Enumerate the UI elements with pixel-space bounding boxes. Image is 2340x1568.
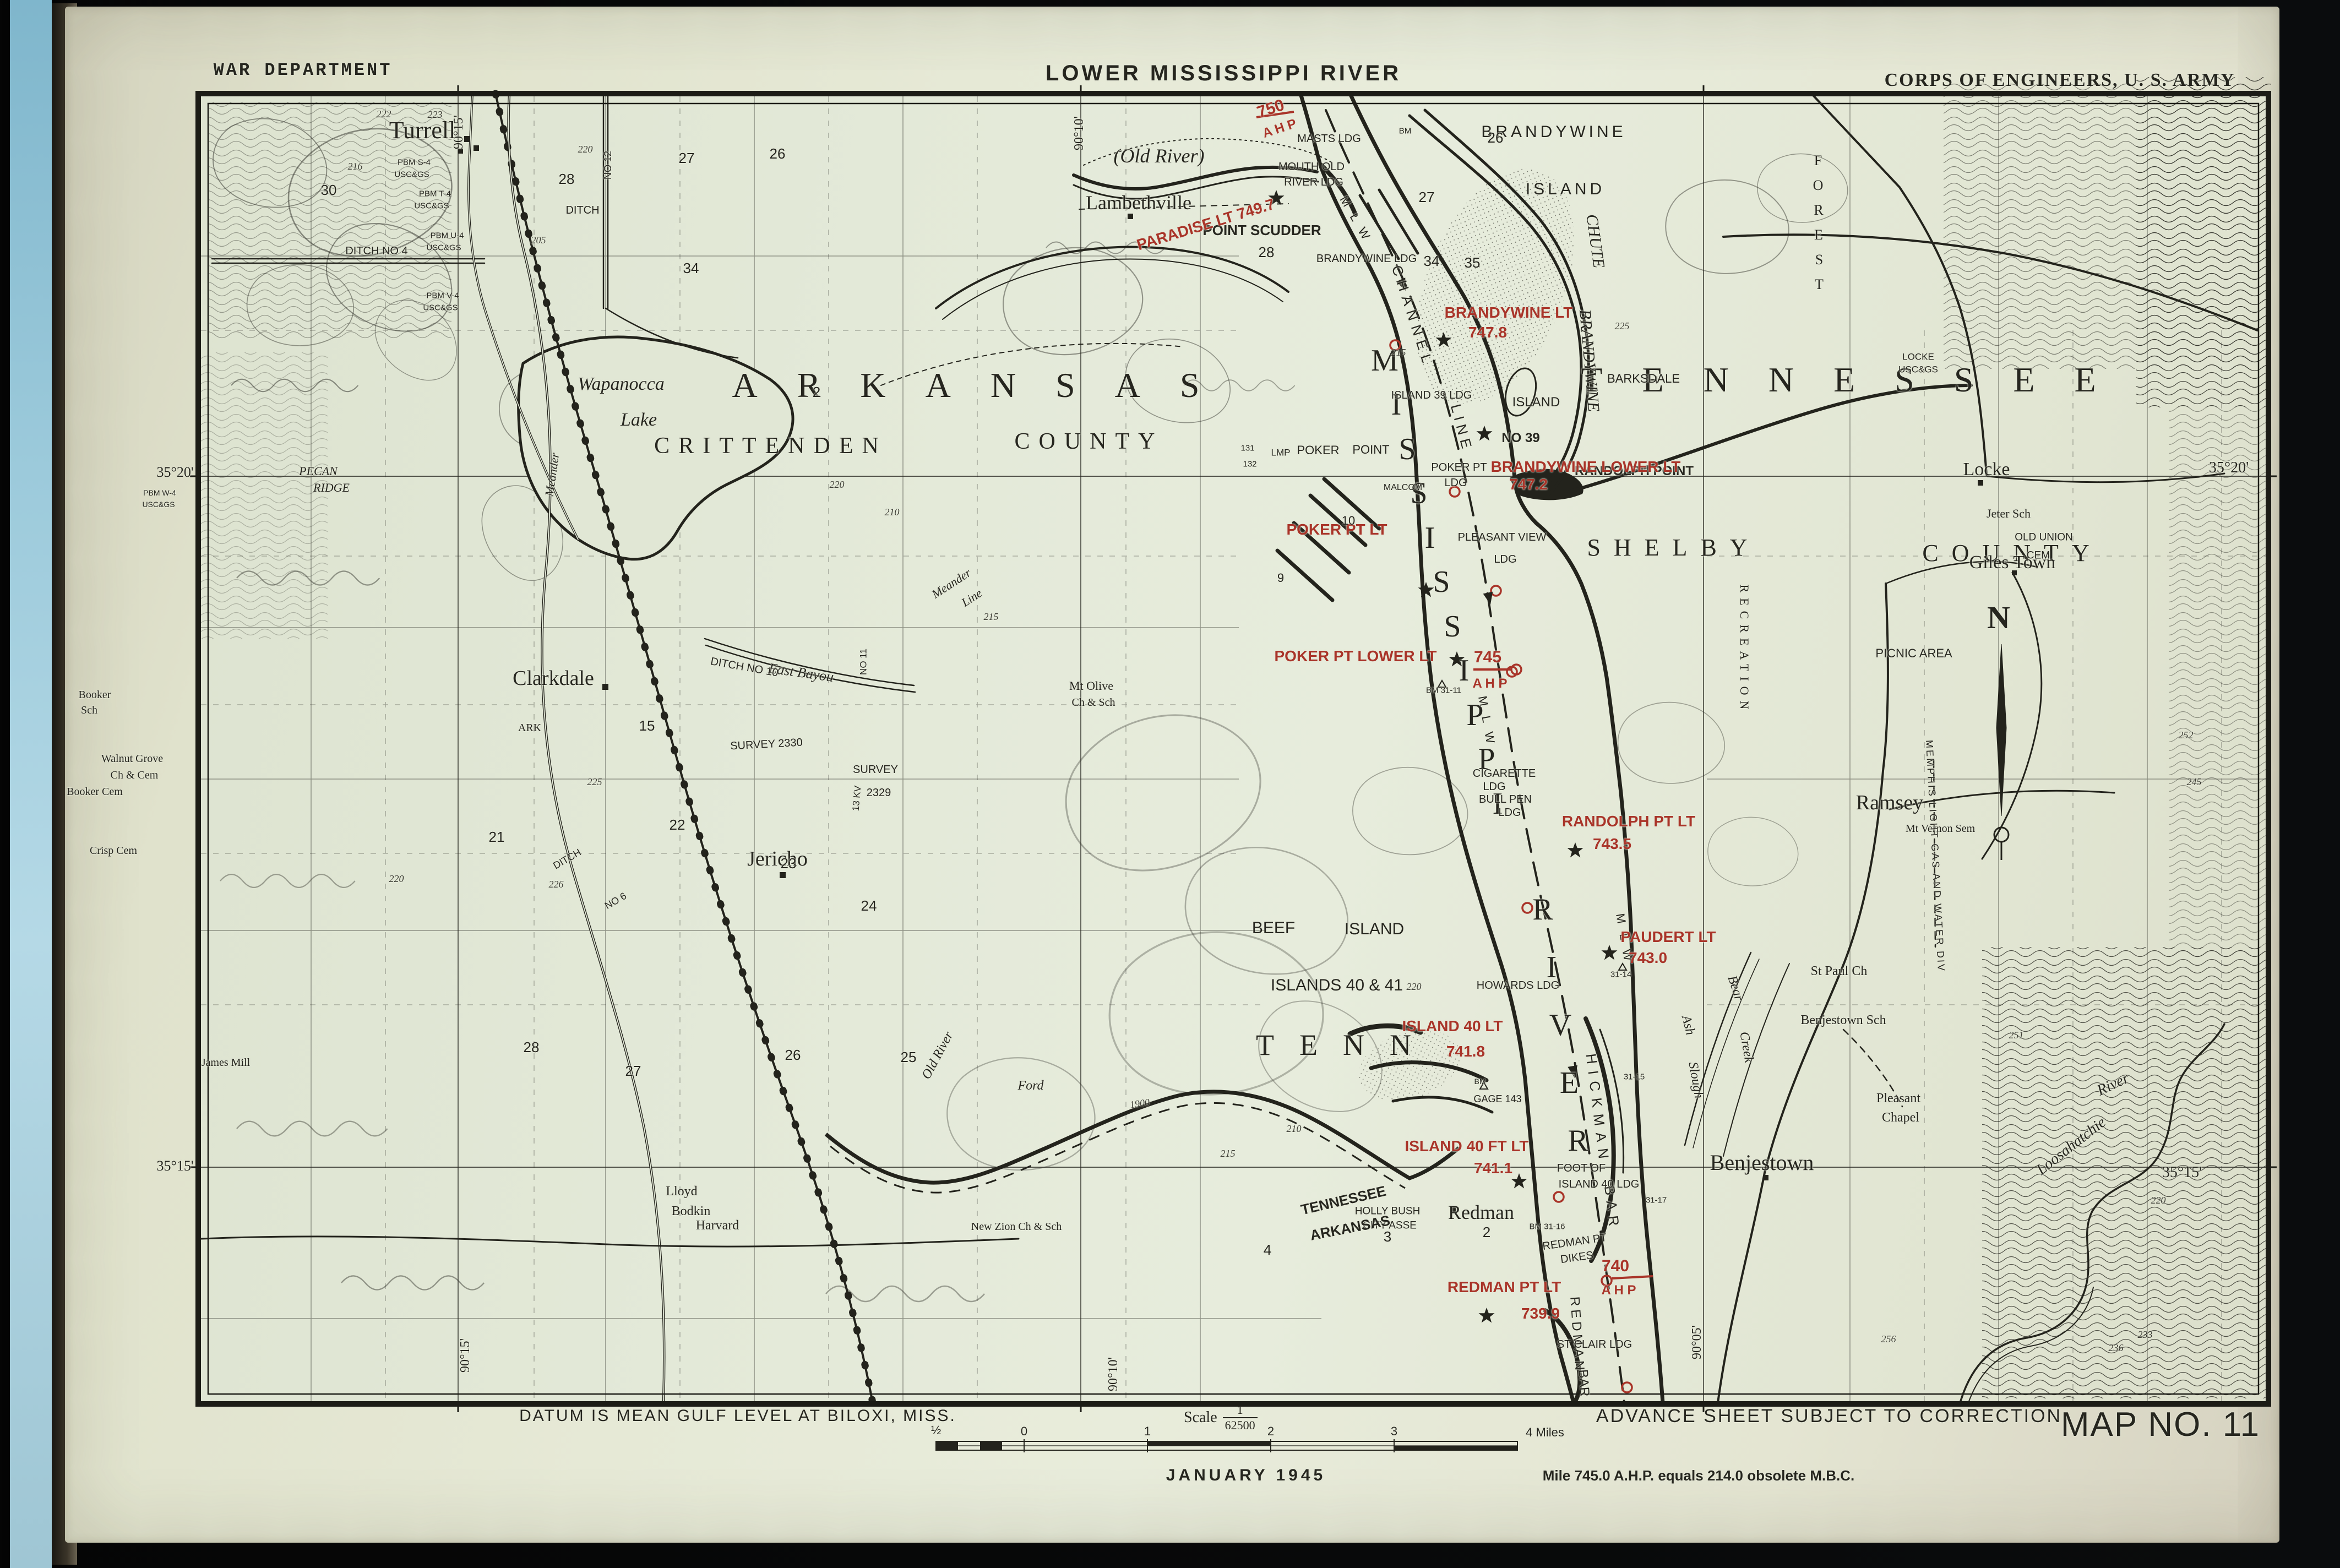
map-label: USC&GS <box>394 171 429 179</box>
map-label: HOWARDS LDG <box>1477 980 1559 991</box>
header-agency-right: CORPS OF ENGINEERS, U. S. ARMY <box>1885 71 2235 90</box>
map-label: 1900 <box>1129 1097 1150 1110</box>
map-label: I <box>1425 522 1435 553</box>
map-label: CIGARETTE <box>1473 768 1536 779</box>
map-label: 220 <box>2151 1195 2166 1205</box>
map-label: 210 <box>885 507 900 517</box>
map-label: T <box>1815 277 1824 292</box>
map-label: 215 <box>984 612 999 622</box>
map-label: 4 Miles <box>1526 1427 1564 1439</box>
map-label: BM 31-16 <box>1529 1223 1565 1231</box>
map-label: R <box>1532 894 1553 925</box>
map-label: Clarkdale <box>513 668 594 689</box>
scale-bar <box>936 1439 1517 1452</box>
map-label: S <box>1398 434 1416 465</box>
map-label: MOUTH OLD <box>1278 161 1345 172</box>
map-label: POINT <box>1352 444 1389 456</box>
map-label: DITCH NO 4 <box>345 246 407 257</box>
header-map-title: LOWER MISSISSIPPI RIVER <box>1046 62 1401 84</box>
map-label: 215 <box>1391 347 1406 357</box>
map-label: BEEF <box>1252 920 1295 937</box>
map-label: 90°15' <box>459 1338 472 1373</box>
contour-art <box>201 77 2271 1398</box>
map-label: 132 <box>1243 460 1256 469</box>
map-label: (Old River) <box>1114 146 1205 166</box>
map-label: 35°20' <box>2209 460 2249 476</box>
map-label: ISLAND 40 FT LT <box>1405 1139 1528 1154</box>
map-label: R <box>1568 1125 1588 1156</box>
map-label: O <box>1813 178 1824 193</box>
map-label: GAGE 143 <box>1473 1094 1521 1104</box>
map-label: A H P <box>1601 1284 1636 1297</box>
map-label: 741.8 <box>1446 1044 1485 1059</box>
map-label: 2329 <box>867 787 891 798</box>
map-label: LDG <box>1494 554 1516 565</box>
map-label: PBM T-4 <box>419 190 451 198</box>
map-label: LDG <box>1483 781 1505 792</box>
map-label: 90°10' <box>1073 116 1086 150</box>
map-label: A H P <box>1472 677 1507 690</box>
map-label: Ford <box>1017 1079 1043 1092</box>
map-label: CEM <box>2027 551 2050 561</box>
map-label: LOCKE <box>1902 352 1934 362</box>
map-label: 743.5 <box>1593 836 1631 852</box>
map-label: 216 <box>348 161 363 171</box>
map-label: 747.8 <box>1468 325 1507 340</box>
map-label: 90°05' <box>1690 1325 1704 1359</box>
map-label: LDG <box>1444 477 1467 488</box>
map-label: 22 <box>670 818 685 832</box>
map-label: 131 <box>1240 444 1254 453</box>
map-label: Pleasant <box>1876 1092 1920 1105</box>
map-label: S <box>1433 567 1450 597</box>
map-label: Lake <box>621 411 657 429</box>
map-label: PBM S-4 <box>398 159 431 167</box>
map-label: 28 <box>524 1040 540 1054</box>
map-label: 210 <box>1287 1124 1302 1134</box>
map-label: 233 <box>2138 1330 2153 1340</box>
map-label: Turrell <box>389 118 456 143</box>
map-label: 28 <box>559 172 575 186</box>
map-label: 220 <box>578 144 593 154</box>
map-label: 34 <box>1424 254 1440 268</box>
map-label: POKER <box>1297 444 1339 456</box>
map-label: 741.1 <box>1474 1161 1512 1176</box>
map-label: 205 <box>531 235 546 245</box>
map-label: ARKANSAS <box>732 368 1239 403</box>
map-label: PBM U-4 <box>431 232 464 240</box>
footer-mile-note: Mile 745.0 A.H.P. equals 214.0 obsolete … <box>1543 1468 1854 1483</box>
map-label: 21 <box>489 830 505 844</box>
map-label: Crisp Cem <box>90 845 137 856</box>
map-label: F <box>1814 154 1822 168</box>
map-label: BRANDYWINE LOWER LT <box>1491 459 1681 475</box>
map-label: I <box>1459 655 1470 686</box>
map-label: 3 <box>1384 1229 1391 1244</box>
map-symbols <box>458 112 2017 1392</box>
map-label: USC&GS <box>423 304 458 312</box>
map-label: ISLAND 40 LDG <box>1559 1179 1640 1190</box>
map-label: R <box>1814 203 1823 217</box>
map-label: I <box>1547 952 1557 983</box>
map-label: S <box>1444 611 1461 642</box>
map-label: CRITTENDEN <box>654 434 888 458</box>
map-label: RANDOLPH PT LT <box>1562 814 1695 829</box>
map-label: 35°15' <box>156 1159 193 1173</box>
map-label: BM 31-11 <box>1426 687 1461 695</box>
map-label: USC&GS <box>426 244 461 252</box>
map-label: 220 <box>389 874 404 884</box>
map-label: ISLAND 40 LT <box>1402 1019 1503 1034</box>
map-label: Lloyd <box>666 1185 697 1198</box>
map-label: MALCOM <box>1384 483 1422 492</box>
map-label: USC&GS <box>1898 365 1938 374</box>
map-label: Mt Vernon Sem <box>1906 823 1975 834</box>
map-label: REDMAN PT LT <box>1447 1280 1561 1295</box>
map-label: Jericho <box>747 848 808 869</box>
map-label: Wapanocca <box>578 375 664 394</box>
map-label: MASTS LDG <box>1297 133 1361 144</box>
scale-numerator: 1 <box>1223 1403 1258 1417</box>
map-label: 90°10' <box>1107 1357 1120 1391</box>
map-label: 740 <box>1602 1258 1629 1275</box>
map-label: PECAN <box>299 465 338 477</box>
map-label: 2 <box>1483 1225 1490 1239</box>
map-label: ISLAND <box>1345 921 1404 938</box>
map-label: 252 <box>2179 730 2194 740</box>
map-label: Locke <box>1963 460 2010 479</box>
map-label: NO 11 <box>859 649 868 675</box>
map-label: 220 <box>830 480 845 489</box>
map-label: 27 <box>625 1064 641 1078</box>
map-label: BRANDYWINE LT <box>1445 305 1573 320</box>
map-label: 28 <box>1259 245 1275 259</box>
map-label: 27 <box>679 151 695 165</box>
map-label: Harvard <box>696 1219 739 1232</box>
map-label: Bodkin <box>672 1205 711 1218</box>
map-label: 31-15 <box>1624 1073 1645 1081</box>
map-label: BM <box>1399 127 1412 135</box>
map-label: LMP <box>1271 448 1291 458</box>
map-label: PLEASANT VIEW <box>1458 532 1547 543</box>
map-label: NO 12 <box>603 151 613 179</box>
map-label: BULL PEN <box>1479 794 1532 805</box>
map-label: James Mill <box>202 1057 250 1068</box>
map-label: POKER PT LOWER LT <box>1274 649 1436 664</box>
map-label: POKER PT <box>1431 462 1487 473</box>
map-label: 251 <box>2009 1030 2024 1040</box>
map-label: 23 <box>781 856 797 870</box>
map-label: ST CLAIR LDG <box>1557 1339 1632 1350</box>
map-label: 245 <box>2187 777 2202 787</box>
map-label: 26 <box>1488 130 1504 145</box>
map-label: COUNTY <box>1015 430 1164 453</box>
map-label: Booker Cem <box>67 786 123 797</box>
map-label: 226 <box>549 879 564 889</box>
map-label: 31-14 <box>1610 971 1631 979</box>
map-label: 9 <box>1277 572 1284 584</box>
map-label: 26 <box>785 1048 801 1062</box>
map-label: Sch <box>81 705 97 716</box>
map-label: 743.0 <box>1629 950 1667 966</box>
map-label: Benjestown <box>1710 1152 1814 1174</box>
map-label: POKER PT LT <box>1286 522 1387 537</box>
map-label: PBM W-4 <box>143 489 176 497</box>
map-label: 215 <box>1221 1148 1236 1158</box>
map-label: 0 <box>1021 1425 1027 1438</box>
scale-denominator: 62500 <box>1223 1417 1258 1433</box>
map-label: 27 <box>1419 190 1435 204</box>
map-label: 3 <box>1391 1425 1397 1438</box>
map-label: Mt Olive <box>1069 680 1113 692</box>
footer-advance-note: ADVANCE SHEET SUBJECT TO CORRECTION <box>1596 1407 2062 1425</box>
map-label: 739.9 <box>1521 1306 1560 1321</box>
map-label: RECREATION <box>1738 585 1750 715</box>
map-label: 26 <box>770 146 786 161</box>
map-label: USC&GS <box>414 202 449 210</box>
map-label: SURVEY <box>853 764 898 775</box>
map-label: 13 KV <box>851 785 863 812</box>
map-label: ½ <box>931 1424 941 1436</box>
map-label: 2 <box>1267 1425 1274 1438</box>
map-label: E <box>1560 1068 1579 1098</box>
map-label: DITCH <box>565 205 599 216</box>
map-label: RIVER LDG <box>1284 177 1343 188</box>
map-label: Ch & Sch <box>1072 697 1115 708</box>
map-label: BRANDYWINE LDG <box>1316 253 1417 264</box>
footer-map-number: MAP NO. 11 <box>2061 1408 2260 1442</box>
map-label: Benjestown Sch <box>1800 1014 1886 1027</box>
map-label: ARK <box>518 722 541 733</box>
building-marks <box>458 136 2017 1213</box>
map-label: ISLANDS 40 & 41 <box>1271 977 1403 994</box>
map-label: 222 <box>377 109 391 119</box>
map-label: Walnut Grove <box>101 753 163 764</box>
map-label: 745 <box>1474 649 1501 666</box>
scale-word: Scale <box>1184 1409 1217 1426</box>
map-label: 15 <box>639 718 655 733</box>
map-label: 25 <box>901 1050 917 1064</box>
map-label: 4 <box>1264 1243 1271 1257</box>
map-label: BARKSDALE <box>1607 373 1680 385</box>
footer-datum-note: DATUM IS MEAN GULF LEVEL AT BILOXI, MISS… <box>519 1408 956 1424</box>
map-label: 31-17 <box>1646 1196 1667 1205</box>
map-label: 220 <box>1407 982 1422 992</box>
map-label: PBM V-4 <box>426 292 459 300</box>
map-label: 223 <box>428 110 443 119</box>
map-label: 225 <box>1615 321 1630 331</box>
compass-north-label: N <box>1987 602 2010 634</box>
map-label: TENN <box>1256 1030 1436 1060</box>
map-label: 747.2 <box>1509 477 1548 492</box>
map-label: NO 39 <box>1501 432 1539 445</box>
scanned-map-photo: WAR DEPARTMENT LOWER MISSISSIPPI RIVER C… <box>0 0 2340 1568</box>
map-label: BAR <box>1576 1369 1591 1397</box>
map-label: 24 <box>861 899 877 913</box>
map-label: Chapel <box>1882 1111 1919 1124</box>
map-label: Ch & Cem <box>111 770 159 781</box>
hydrography <box>212 94 2224 1403</box>
footer-date: JANUARY 1945 <box>1166 1467 1326 1484</box>
map-label: ISLAND <box>1512 396 1560 409</box>
map-label: ISLAND <box>1526 181 1605 198</box>
map-label: Redman <box>1448 1202 1514 1222</box>
map-label: 225 <box>587 777 602 787</box>
map-label: PICNIC AREA <box>1875 647 1952 660</box>
footer-scale-ratio: Scale162500 <box>1184 1403 1258 1433</box>
map-label: 1 <box>1144 1425 1151 1438</box>
map-label: S <box>1815 253 1823 267</box>
map-label: V <box>1549 1010 1571 1041</box>
map-label: OLD UNION <box>2015 532 2073 543</box>
map-label: BM <box>1474 1077 1486 1085</box>
map-label: St Paul Ch <box>1811 965 1868 978</box>
map-label: 35°15' <box>2162 1165 2202 1180</box>
compass-needle <box>1994 644 2009 860</box>
map-label: ISLAND 39 LDG <box>1391 390 1472 401</box>
map-label: LDG <box>1498 807 1521 818</box>
map-label: E <box>1814 228 1823 242</box>
map-label: 30 <box>321 183 337 197</box>
map-label: SHELBY <box>1587 536 1760 560</box>
map-label: New Zion Ch & Sch <box>971 1221 1062 1232</box>
map-label: PAUDERT LT <box>1620 929 1716 945</box>
map-label: 10 <box>1342 515 1355 527</box>
map-label: 256 <box>1881 1334 1896 1344</box>
header-agency-left: WAR DEPARTMENT <box>214 62 393 79</box>
map-label: USC&GS <box>142 500 175 508</box>
map-label: 2 <box>813 385 820 399</box>
map-label: Ramsey <box>1856 792 1923 813</box>
map-label: 34 <box>683 261 699 275</box>
map-label: 236 <box>2109 1343 2124 1353</box>
map-label: Lambethville <box>1086 193 1191 213</box>
map-label: Jeter Sch <box>1987 508 2031 520</box>
map-label: Booker <box>79 689 111 700</box>
map-label: RIDGE <box>313 482 350 494</box>
map-label: 35 <box>1465 255 1481 270</box>
map-label: FOOT OF <box>1557 1163 1606 1174</box>
map-label: 35°20' <box>156 465 193 480</box>
